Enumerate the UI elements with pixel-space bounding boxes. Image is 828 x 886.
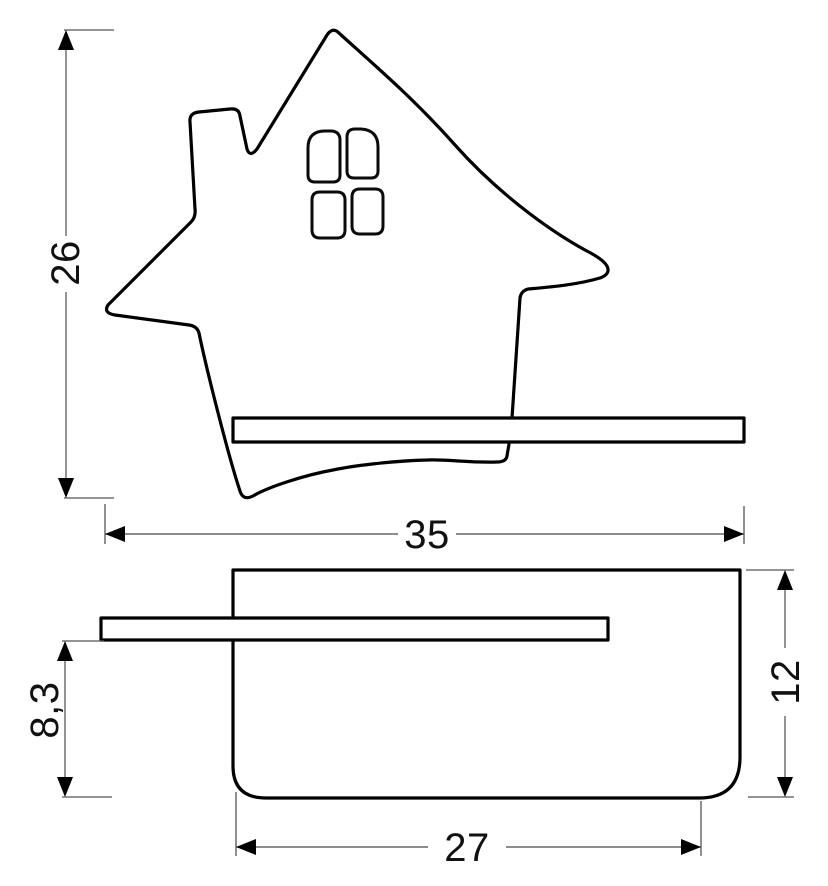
dimension-side-bottom-width: 27 — [236, 792, 701, 870]
window-pane-top-right — [347, 129, 378, 178]
window-pane-bottom-right — [352, 189, 383, 234]
arrowhead-left-icon — [236, 839, 256, 855]
side-body-outline — [233, 570, 740, 798]
arrowhead-down-icon — [58, 478, 74, 498]
front-view — [107, 30, 744, 497]
dimension-front-width: 35 — [105, 504, 744, 557]
dimension-label-width: 35 — [404, 513, 450, 557]
arrowhead-down-icon — [57, 777, 73, 797]
shelf-board-side — [101, 618, 608, 640]
shelf-board-front — [233, 418, 744, 442]
dimension-label-shelf-depth: 8,3 — [23, 681, 67, 738]
technical-drawing-page: 26 35 8,3 12 — [0, 0, 828, 886]
arrowhead-up-icon — [57, 641, 73, 661]
dimension-label-bottom-width: 27 — [444, 826, 490, 870]
dimension-side-shelf-depth: 8,3 — [23, 641, 112, 797]
arrowhead-up-icon — [777, 570, 793, 590]
arrowhead-down-icon — [777, 777, 793, 797]
arrowhead-right-icon — [724, 526, 744, 542]
dimension-label-side-height: 12 — [764, 659, 808, 705]
arrowhead-up-icon — [58, 30, 74, 50]
window-pane-bottom-left — [312, 192, 345, 238]
house-wall-lamp-dimensional-drawing: 26 35 8,3 12 — [0, 0, 828, 886]
arrowhead-right-icon — [681, 839, 701, 855]
dimension-front-height: 26 — [44, 30, 114, 498]
window-pane-top-left — [308, 131, 340, 182]
arrowhead-left-icon — [105, 526, 125, 542]
side-view — [101, 570, 740, 798]
dimension-side-height: 12 — [746, 570, 808, 797]
dimension-label-height: 26 — [44, 240, 88, 286]
